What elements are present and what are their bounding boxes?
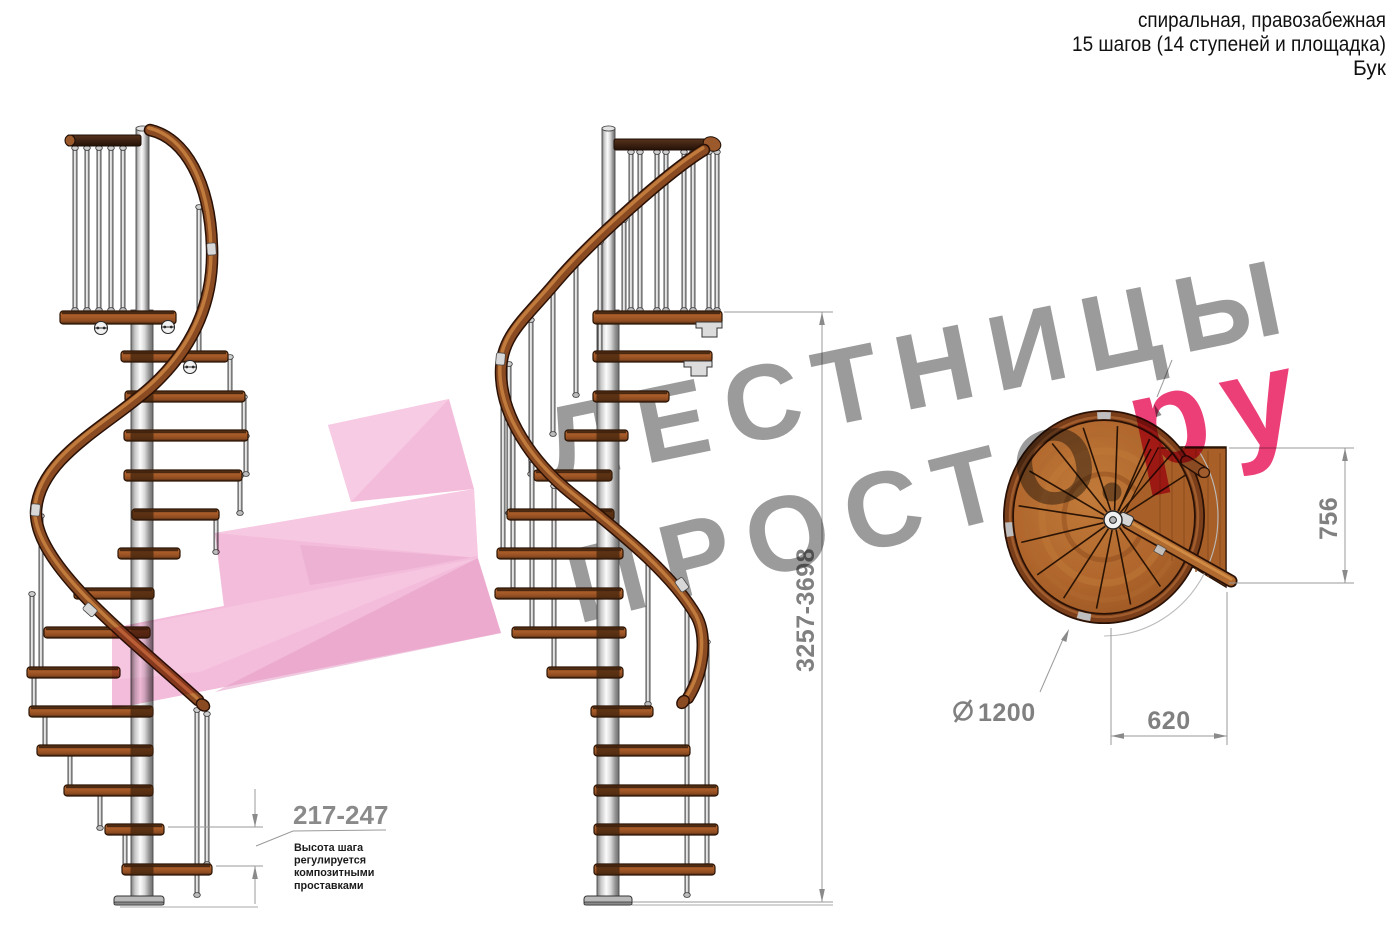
svg-text:Высота шагарегулируетсякомпози: Высота шагарегулируетсякомпозитнымипрост… [294, 842, 374, 892]
svg-text:756: 756 [1315, 497, 1343, 540]
svg-text:217-247: 217-247 [293, 800, 388, 830]
svg-text:620: 620 [1147, 707, 1190, 735]
svg-text:1200: 1200 [978, 699, 1036, 727]
